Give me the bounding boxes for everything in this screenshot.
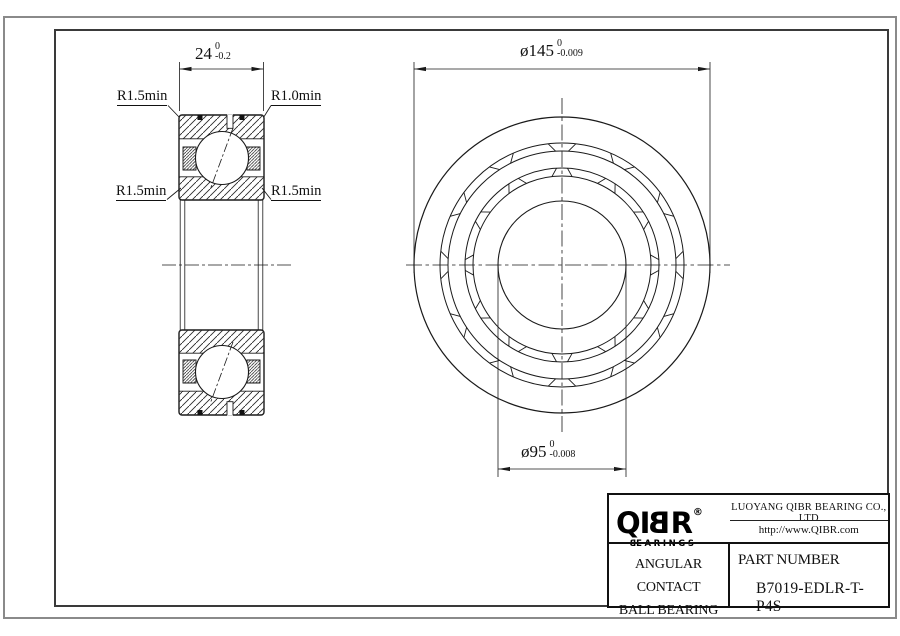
registered-trademark-symbol: ® [693, 507, 703, 518]
dim-value: ø95 [521, 443, 547, 461]
dim-value: 24 [195, 45, 212, 63]
dim-tolerance: 0 -0.008 [550, 440, 576, 460]
company-cell: LUOYANG QIBR BEARING CO., LTD http://www… [730, 495, 888, 542]
section-top-half [179, 114, 264, 200]
radius-label-mid-left: R1.5min [116, 184, 166, 201]
company-website: http://www.QIBR.com [730, 524, 888, 536]
part-number-cell: PART NUMBER B7019-EDLR-T-P4S [730, 544, 888, 606]
dim-tolerance: 0 -0.2 [215, 42, 231, 62]
cage-bar [183, 147, 196, 170]
product-type-line2: BALL BEARING [609, 599, 728, 622]
dim-tolerance: 0 -0.009 [557, 39, 583, 59]
lube-notch [240, 115, 245, 120]
ball [196, 346, 249, 399]
title-block-header-row: QIBR® BEARINGS LUOYANG QIBR BEARING CO.,… [609, 495, 888, 542]
dim-value: ø145 [520, 42, 554, 60]
ball [196, 132, 249, 185]
lube-notch [198, 410, 203, 415]
cage-bar [183, 360, 196, 383]
dim-text-outer-diameter: ø145 0 -0.009 [520, 42, 583, 60]
dim-text-bore-diameter: ø95 0 -0.008 [521, 443, 575, 461]
front-view [406, 62, 730, 477]
lube-notch [198, 115, 203, 120]
brand-logo-wordmark: QIBR® [616, 498, 703, 538]
title-block-bottom-row: ANGULAR CONTACT BALL BEARING PART NUMBER… [609, 542, 888, 606]
section-bottom-half [179, 330, 264, 416]
dim-width-24 [180, 62, 264, 111]
company-divider [730, 520, 888, 521]
part-number-value: B7019-EDLR-T-P4S [756, 580, 888, 616]
title-block: QIBR® BEARINGS LUOYANG QIBR BEARING CO.,… [607, 493, 890, 608]
product-type-line1: ANGULAR CONTACT [609, 553, 728, 599]
section-view [162, 62, 292, 416]
dim-text-width: 24 0 -0.2 [195, 45, 231, 63]
radius-label-mid-right: R1.5min [271, 184, 321, 201]
radius-label-top-left: R1.5min [117, 89, 167, 106]
radius-label-top-right: R1.0min [271, 89, 321, 106]
product-type-cell: ANGULAR CONTACT BALL BEARING [609, 544, 730, 606]
drawing-sheet: 24 0 -0.2 ø145 0 -0.009 ø95 0 -0.008 R1.… [0, 0, 900, 636]
lube-notch [240, 410, 245, 415]
part-number-label: PART NUMBER [738, 552, 840, 569]
